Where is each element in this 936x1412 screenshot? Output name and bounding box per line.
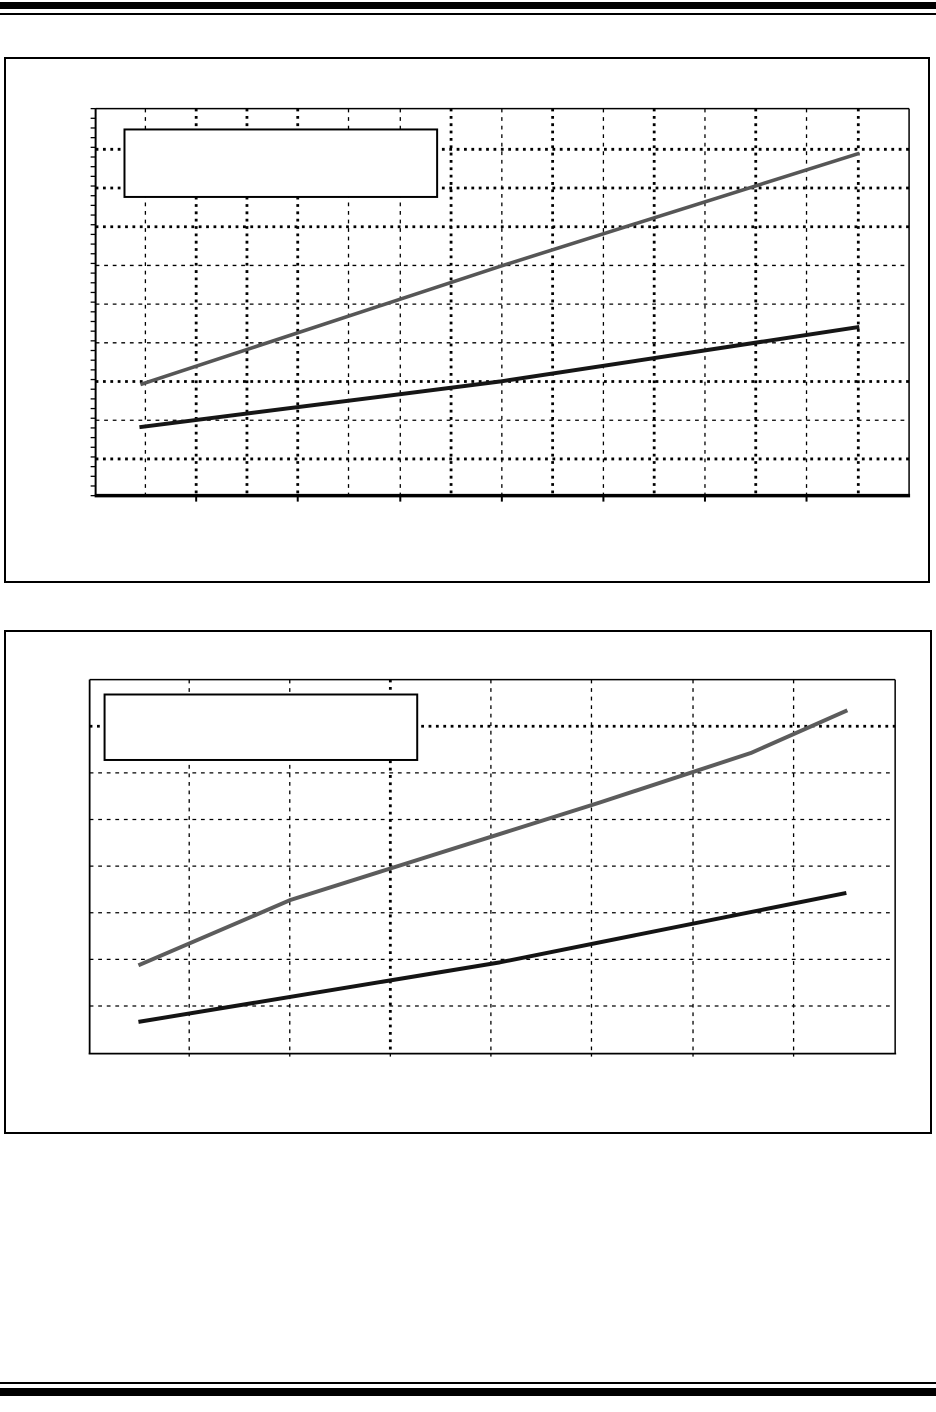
legend-box: [124, 129, 437, 196]
page-header-rule-thin: [0, 13, 936, 15]
lower-black-line: [139, 327, 859, 427]
figure-frame-2: [4, 630, 932, 1134]
figure-canvas-2: [6, 632, 930, 1132]
page-footer-rule-thick: [0, 1388, 936, 1396]
page-header-rule-thick: [0, 2, 936, 9]
page-footer-rule-thin: [0, 1382, 936, 1384]
figure-canvas-1: [6, 59, 928, 581]
legend-box: [105, 695, 418, 760]
figure-frame-1: [4, 57, 930, 583]
